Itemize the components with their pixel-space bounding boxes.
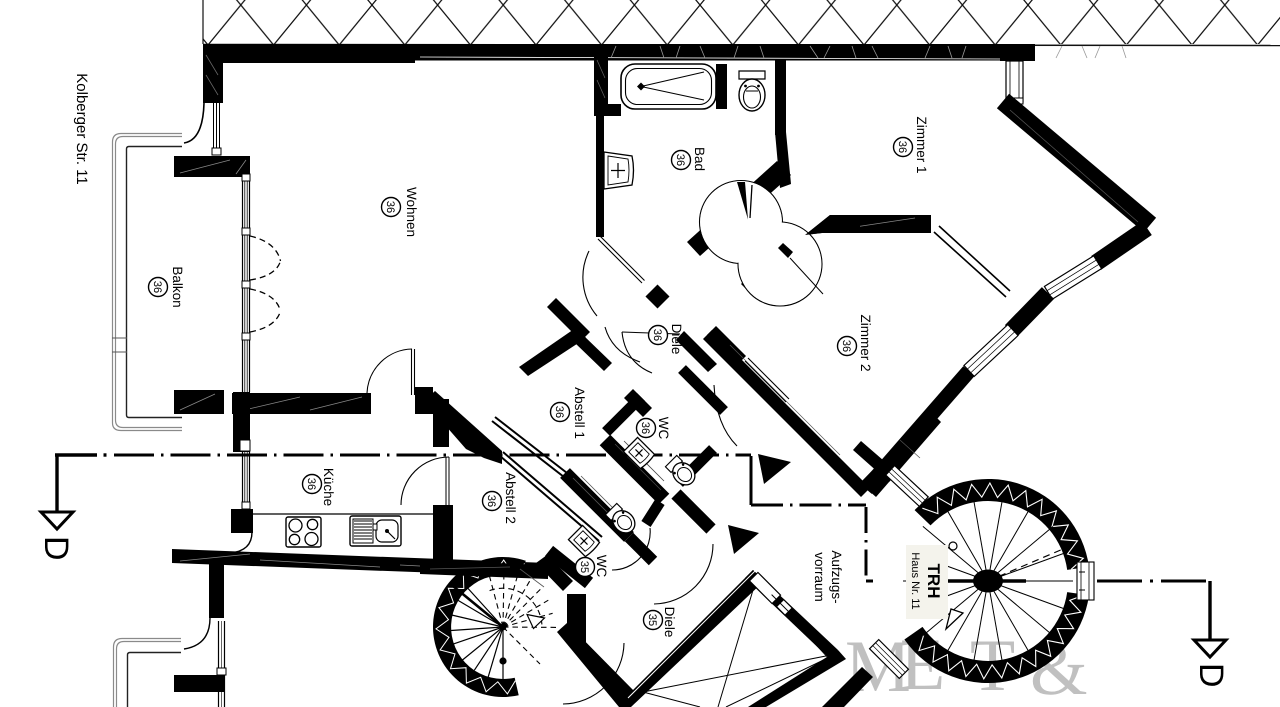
svg-text:Abstell 2: Abstell 2 — [503, 472, 518, 524]
svg-text:Diele: Diele — [669, 324, 684, 355]
svg-text:Diele: Diele — [662, 607, 677, 638]
svg-text:Haus Nr. 11: Haus Nr. 11 — [909, 552, 921, 609]
svg-text:36: 36 — [553, 406, 565, 418]
svg-text:36: 36 — [840, 340, 852, 352]
svg-text:Kolberger Str. 11: Kolberger Str. 11 — [73, 73, 90, 184]
svg-text:WC: WC — [656, 417, 671, 440]
svg-text:36: 36 — [305, 478, 317, 490]
svg-text:Zimmer 1: Zimmer 1 — [914, 117, 929, 174]
svg-text:36: 36 — [639, 422, 651, 434]
svg-text:D: D — [1192, 663, 1230, 688]
svg-text:36: 36 — [674, 154, 686, 166]
svg-text:36: 36 — [384, 201, 396, 213]
svg-text:Zimmer 2: Zimmer 2 — [858, 315, 873, 372]
svg-text:36: 36 — [151, 281, 163, 293]
svg-text:TRH: TRH — [924, 564, 943, 599]
svg-text:Aufzugs-: Aufzugs- — [829, 550, 844, 603]
svg-text:Balkon: Balkon — [170, 266, 185, 307]
svg-text:35: 35 — [646, 614, 658, 626]
svg-text:Wohnen: Wohnen — [404, 187, 419, 237]
svg-text:D: D — [37, 536, 75, 561]
svg-text:36: 36 — [651, 329, 663, 341]
svg-text:WC: WC — [594, 555, 609, 578]
svg-text:Küche: Küche — [321, 468, 336, 506]
svg-text:Bad: Bad — [692, 147, 707, 171]
svg-text:36: 36 — [896, 141, 908, 153]
svg-text:35: 35 — [578, 561, 590, 573]
svg-text:Abstell 1: Abstell 1 — [572, 387, 587, 439]
svg-text:36: 36 — [485, 495, 497, 507]
svg-text:vorraum: vorraum — [812, 552, 827, 602]
